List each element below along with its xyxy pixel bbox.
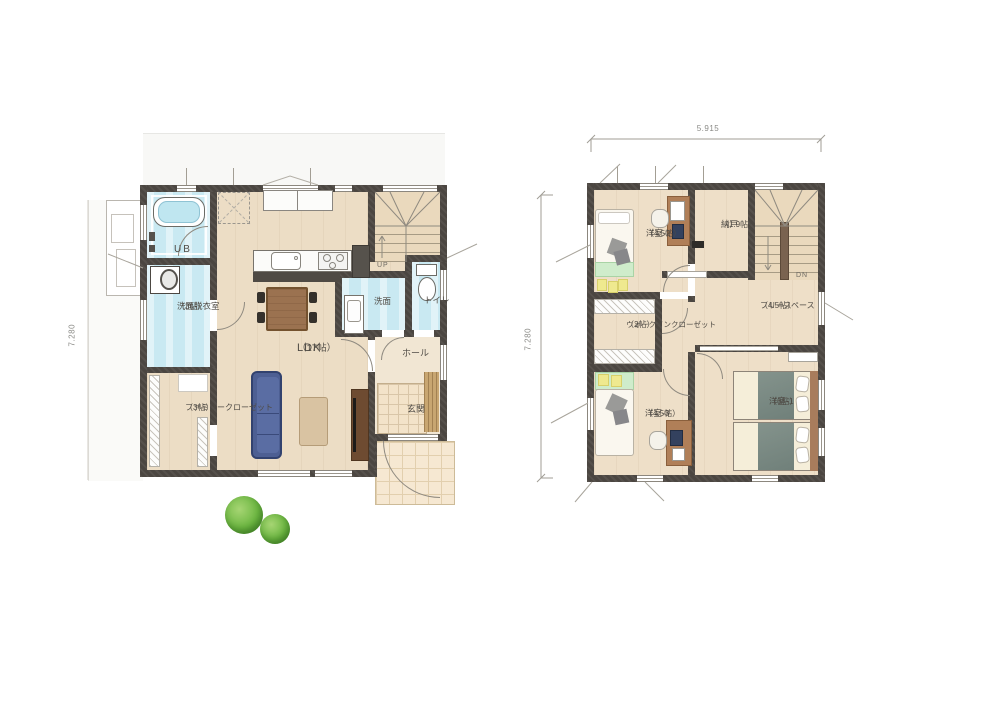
- window: [440, 345, 447, 380]
- toilet-tank: [416, 264, 437, 276]
- dining-table: [266, 287, 308, 331]
- kitchen-cupboard: [263, 190, 333, 211]
- outdoor-unit-2: [116, 249, 136, 287]
- floor-cushion: [598, 374, 609, 386]
- floor-cushion: [611, 375, 622, 387]
- stairs-2f-treads-left: [755, 228, 780, 280]
- tree: [260, 514, 290, 544]
- wall: [655, 299, 662, 372]
- tv: [353, 398, 356, 452]
- window: [755, 183, 783, 190]
- stairs-up-label: UP: [377, 262, 389, 269]
- laptop: [670, 430, 683, 446]
- outdoor-unit-1: [111, 214, 134, 243]
- dimension-top-2f: 5.915: [688, 124, 728, 133]
- floor-cushion: [597, 279, 607, 291]
- wall-marker: [703, 166, 704, 183]
- stairs-dn-label: DN: [796, 272, 808, 279]
- wall: [587, 364, 662, 372]
- floor-plan-canvas: UB 洗面脱衣室 （3帖） ファミリークローゼット （3帖） LDK （17帖）…: [0, 0, 999, 706]
- window: [177, 185, 196, 192]
- door-opening: [660, 292, 688, 299]
- desk-paper: [670, 201, 685, 221]
- pillow: [795, 446, 810, 464]
- window: [315, 470, 352, 477]
- dimension-left-2f: 7.280: [524, 311, 533, 351]
- blanket: [758, 423, 794, 470]
- cooktop-burner: [323, 254, 331, 262]
- tv-unit: [692, 241, 704, 248]
- floor-cushion: [618, 279, 628, 291]
- floor-cushion: [608, 281, 618, 293]
- wall-marker: [233, 168, 234, 185]
- desk-chair: [649, 431, 667, 450]
- pillow: [795, 426, 810, 443]
- washbasin-bowl: [347, 300, 361, 322]
- wall-marker: [617, 166, 618, 183]
- desk-chair: [651, 209, 669, 228]
- wall: [587, 183, 825, 190]
- kitchen-faucet: [294, 256, 298, 260]
- window: [140, 300, 147, 340]
- desk-paper: [672, 448, 685, 461]
- kitchen-cupboard-divider: [297, 190, 298, 211]
- headboard: [810, 371, 818, 471]
- wic-shelf-bottom: [594, 349, 655, 364]
- window: [640, 183, 668, 190]
- door-opening: [382, 330, 404, 337]
- blanket-accent: [595, 262, 634, 277]
- wall: [335, 278, 342, 337]
- window: [818, 428, 825, 456]
- window: [587, 225, 594, 258]
- wall-marker: [655, 166, 656, 183]
- kitchen-sink: [271, 252, 301, 270]
- closet-shelf: [178, 374, 208, 392]
- closet-hatch-right: [197, 417, 208, 467]
- closet-counter: [788, 352, 818, 362]
- dining-chair: [257, 292, 265, 303]
- wall: [147, 367, 217, 373]
- clothes: [613, 409, 630, 426]
- entrance-bench: [424, 372, 439, 432]
- closet-hatch-left: [149, 375, 160, 467]
- wall-marker: [310, 168, 311, 185]
- bathtub-inner: [158, 201, 200, 223]
- wall: [147, 258, 217, 265]
- pillow: [598, 212, 630, 224]
- entrance-door: [388, 434, 438, 441]
- cooktop-burner: [336, 254, 344, 262]
- shower-fixture: [149, 245, 155, 252]
- wall: [440, 185, 447, 441]
- shower-fixture: [149, 232, 155, 241]
- wall-marker: [186, 168, 187, 185]
- kitchen-island-front: [253, 272, 340, 282]
- dining-chair: [257, 312, 265, 323]
- window: [140, 205, 147, 240]
- pillow: [795, 375, 810, 393]
- coffee-table: [299, 397, 328, 446]
- dining-chair: [309, 312, 317, 323]
- window: [752, 475, 778, 482]
- sliding-door-opening: [700, 346, 778, 351]
- sofa-seat: [257, 377, 279, 453]
- dimension-left-1f: 7.280: [68, 307, 77, 347]
- door-opening: [210, 425, 217, 456]
- cooktop-burner: [329, 262, 336, 269]
- wall: [587, 475, 825, 482]
- refrigerator-space: [218, 192, 250, 224]
- site-area-top: [143, 133, 445, 185]
- window: [383, 185, 437, 192]
- tree: [225, 496, 263, 534]
- refrigerator: [352, 245, 370, 278]
- window: [818, 380, 825, 410]
- window: [587, 398, 594, 430]
- wall: [748, 190, 755, 280]
- wic-shelf-top: [594, 299, 655, 314]
- window: [258, 470, 310, 477]
- stairs-railing: [780, 222, 789, 280]
- door-opening: [414, 330, 434, 337]
- dining-chair: [309, 292, 317, 303]
- wall: [335, 271, 412, 278]
- washing-machine-drum: [160, 269, 178, 290]
- window: [637, 475, 663, 482]
- wall: [405, 255, 447, 262]
- window: [818, 292, 825, 325]
- window: [335, 185, 352, 192]
